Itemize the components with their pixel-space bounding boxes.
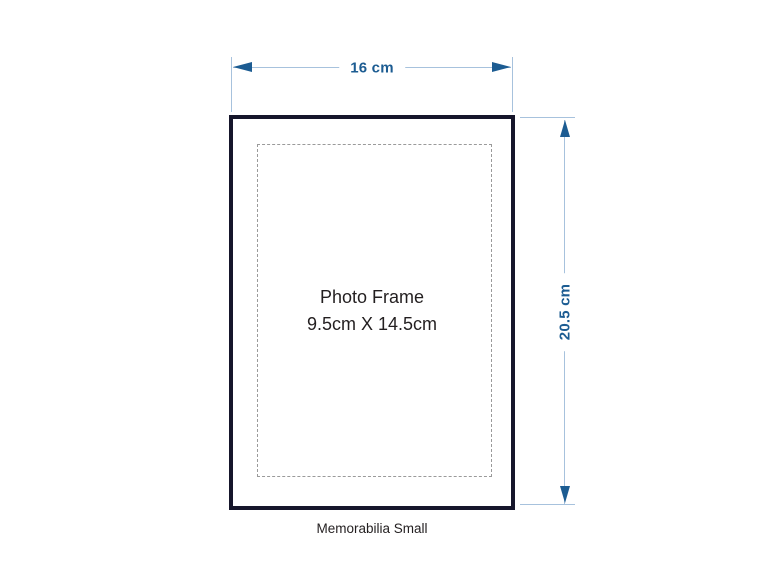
extension-line-right-top — [520, 117, 575, 118]
extension-line-top-right — [512, 57, 513, 112]
arrow-left-icon — [233, 62, 252, 72]
arrow-right-icon — [492, 62, 511, 72]
diagram-canvas: 16 cm Photo Frame 9.5cm X 14.5cm 20.5 cm… — [0, 0, 782, 586]
extension-line-top-left — [231, 57, 232, 112]
frame-label-size: 9.5cm X 14.5cm — [229, 311, 515, 338]
height-dimension-label: 20.5 cm — [557, 273, 574, 351]
frame-label: Photo Frame 9.5cm X 14.5cm — [229, 284, 515, 338]
extension-line-right-bottom — [520, 504, 575, 505]
arrow-up-icon — [560, 120, 570, 137]
frame-label-title: Photo Frame — [229, 284, 515, 311]
arrow-down-icon — [560, 486, 570, 503]
width-dimension-label: 16 cm — [339, 60, 405, 77]
caption: Memorabilia Small — [229, 521, 515, 536]
